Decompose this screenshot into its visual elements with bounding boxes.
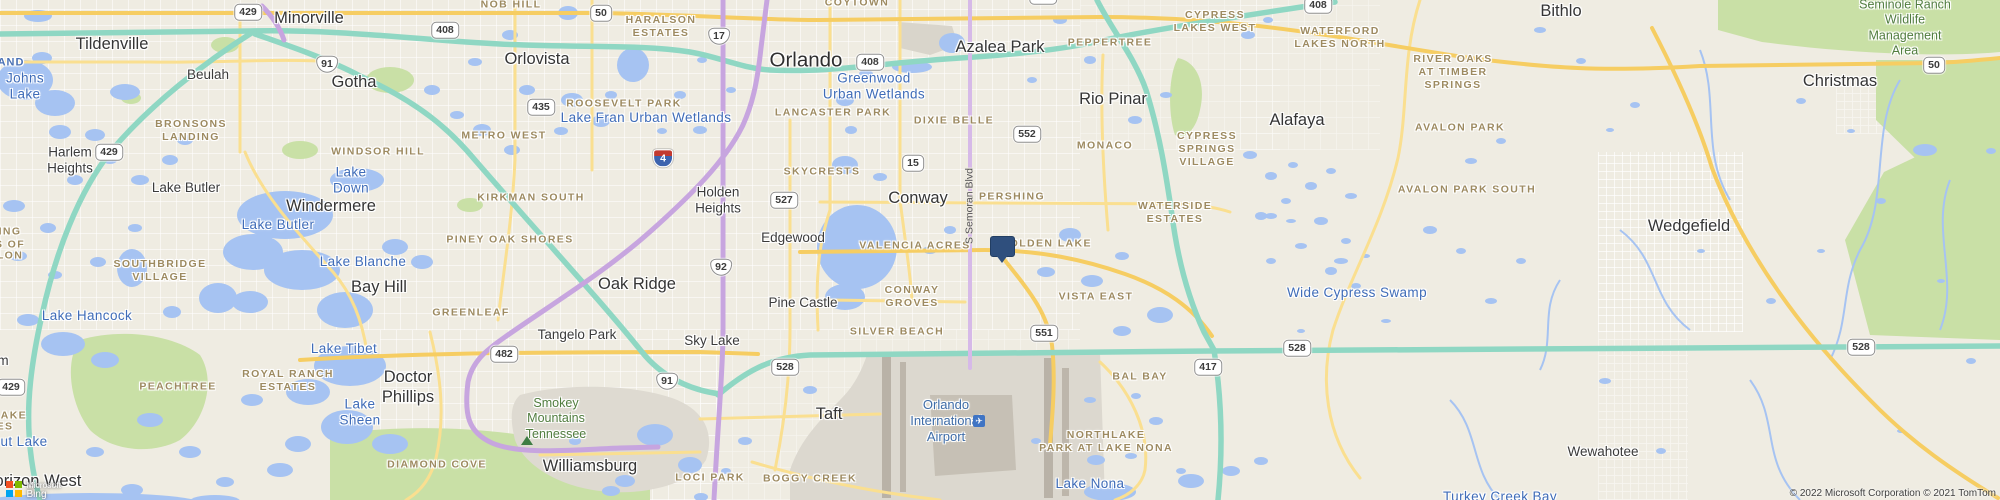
route-shield-528: 528 <box>1283 340 1311 357</box>
label-hood-lancaster-park: LANCASTER PARK <box>775 107 891 120</box>
label-city-doctor-phillips: Doctor Phillips <box>382 367 434 407</box>
label-water-lake-nona: Lake Nona <box>1056 476 1125 492</box>
label-water-fragment: ut Lake <box>0 434 47 450</box>
copyright-attribution: © 2022 Microsoft Corporation © 2021 TomT… <box>1790 488 1996 499</box>
label-water-turkey-creek-bay: Turkey Creek Bay <box>1443 489 1557 500</box>
label-city-taft: Taft <box>816 404 843 424</box>
label-city-pine-castle: Pine Castle <box>768 295 837 311</box>
label-hood-piney-oak-shores: PINEY OAK SHORES <box>446 234 573 247</box>
label-city-lake-butler: Lake Butler <box>152 180 220 196</box>
label-hood-cypress-springs-village: CYPRESS SPRINGS VILLAGE <box>1177 130 1237 168</box>
label-hood-roosevelt-park: ROOSEVELT PARK <box>566 98 681 111</box>
label-hood-cypress-lakes-west: CYPRESS LAKES WEST <box>1174 9 1257 35</box>
label-water-lake-fran: Lake Fran Urban Wetlands <box>561 110 732 126</box>
label-city-christmas: Christmas <box>1803 71 1877 91</box>
label-water-wide-cypress-swamp: Wide Cypress Swamp <box>1287 285 1427 301</box>
route-shield-429: 429 <box>0 379 25 396</box>
route-shield-552: 552 <box>1013 126 1041 143</box>
microsoft-squares-icon <box>6 481 22 497</box>
label-water-lake-blanche: Lake Blanche <box>320 254 407 270</box>
route-shield-408: 408 <box>431 22 459 39</box>
label-hood-royal-ranch-estates: ROYAL RANCH ESTATES <box>242 368 334 394</box>
label-hood-vista-east: VISTA EAST <box>1059 291 1134 304</box>
label-city-edgewood: Edgewood <box>761 230 825 246</box>
route-shield-417: 417 <box>1194 359 1222 376</box>
route-shield-4: 4 <box>653 149 673 167</box>
route-shield-50: 50 <box>1923 57 1945 74</box>
route-shield-91: 91 <box>656 373 678 390</box>
label-hood-skycrests: SKYCRESTS <box>784 166 861 179</box>
label-water-lake-butler: Lake Butler <box>242 217 315 233</box>
route-shield-528: 528 <box>1847 339 1875 356</box>
airplane-icon: ✈ <box>973 415 985 427</box>
label-water-lake-down: Lake Down <box>333 165 369 198</box>
label-city-azalea-park: Azalea Park <box>956 37 1045 57</box>
label-green-seminole-ranch: Seminole Ranch Wildlife Management Area <box>1858 0 1953 59</box>
label-city-tildenville: Tildenville <box>76 34 149 54</box>
route-shield-408: 408 <box>1304 0 1332 13</box>
route-shield-527: 527 <box>770 192 798 209</box>
map-canvas[interactable]: OrlandoTildenvilleMinorvilleBeulahGothaO… <box>0 0 2000 500</box>
label-city-orlando: Orlando <box>770 48 843 73</box>
label-city-windermere: Windermere <box>286 196 376 216</box>
label-hood-peppertree: PEPPERTREE <box>1068 37 1153 50</box>
label-hood-bal-bay: BAL BAY <box>1112 371 1167 384</box>
label-water-greenwood: Greenwood Urban Wetlands <box>823 71 925 104</box>
label-city-harlem-heights: Harlem Heights <box>47 145 93 178</box>
label-hood-metro-west: METRO WEST <box>461 130 546 143</box>
label-city-tangelo-park: Tangelo Park <box>538 327 617 343</box>
label-hood-coytown: COYTOWN <box>825 0 889 9</box>
label-water-fragment: AND <box>0 56 24 69</box>
label-green-smokey-mountains: Smokey Mountains Tennessee <box>526 396 586 442</box>
label-city-orlovista: Orlovista <box>504 49 569 69</box>
label-hood-river-oaks: RIVER OAKS AT TIMBER SPRINGS <box>1413 53 1492 91</box>
label-airport-orlando-international: Orlando International Airport <box>910 397 982 445</box>
route-shield-429: 429 <box>234 4 262 21</box>
route-shield-408: 408 <box>856 54 884 71</box>
bing-logo[interactable]: Microsoft Bing <box>6 481 61 500</box>
label-hood-haralson-estates: HARALSON ESTATES <box>626 14 697 40</box>
route-shield-91: 91 <box>316 56 338 73</box>
label-fragment: m <box>0 353 9 369</box>
label-city-holden-heights: Holden Heights <box>695 185 741 218</box>
label-city-bithlo: Bithlo <box>1540 1 1581 21</box>
route-shield-92: 92 <box>710 259 732 276</box>
label-hood-avalon-park: AVALON PARK <box>1415 122 1505 135</box>
label-city-bay-hill: Bay Hill <box>351 277 407 297</box>
label-hood-silver-beach: SILVER BEACH <box>850 326 944 339</box>
label-hood-greenleaf: GREENLEAF <box>432 307 509 320</box>
label-city-conway: Conway <box>888 188 948 208</box>
label-hood-peachtree: PEACHTREE <box>139 381 216 394</box>
label-hood-conway-groves: CONWAY GROVES <box>885 284 940 310</box>
route-shield-528: 528 <box>771 359 799 376</box>
label-fragment: ING <box>0 226 21 239</box>
label-hood-boggy-creek: BOGGY CREEK <box>763 473 857 486</box>
bing-logo-text: Microsoft Bing <box>27 481 61 500</box>
label-water-lake-hancock: Lake Hancock <box>42 308 132 324</box>
label-fragment: ES <box>0 421 13 434</box>
label-fragment: LAKE <box>0 410 27 423</box>
label-city-oak-ridge: Oak Ridge <box>598 274 676 294</box>
label-city-minorville: Minorville <box>274 8 344 28</box>
label-fragment: S OF <box>0 239 25 252</box>
label-hood-valencia-acres: VALENCIA ACRES <box>859 240 970 253</box>
route-shield-50: 50 <box>590 5 612 22</box>
label-hood-diamond-cove: DIAMOND COVE <box>387 459 487 472</box>
park-triangle-icon <box>521 436 533 445</box>
label-water-lake-tibet: Lake Tibet <box>311 341 377 357</box>
label-hood-kirkman-south: KIRKMAN SOUTH <box>477 192 584 205</box>
label-city-wedgefield: Wedgefield <box>1648 216 1730 236</box>
label-hood-pershing: PERSHING <box>979 191 1045 204</box>
label-hood-windsor-hill: WINDSOR HILL <box>331 146 425 159</box>
route-shield-429: 429 <box>95 144 123 161</box>
route-shield-551: 551 <box>1030 325 1058 342</box>
label-city-alafaya: Alafaya <box>1269 110 1324 130</box>
label-city-wewahotee: Wewahotee <box>1567 444 1638 460</box>
label-hood-waterside-estates: WATERSIDE ESTATES <box>1138 200 1212 226</box>
label-water-johns-lake: Johns Lake <box>6 71 44 104</box>
label-city-beulah: Beulah <box>187 67 229 83</box>
route-shield-482: 482 <box>490 346 518 363</box>
label-hood-nob-hill: NOB HILL <box>481 0 542 11</box>
label-hood-waterford-lakes-north: WATERFORD LAKES NORTH <box>1294 25 1385 51</box>
label-hood-avalon-park-south: AVALON PARK SOUTH <box>1398 184 1536 197</box>
label-hood-northlake-park: NORTHLAKE PARK AT LAKE NONA <box>1039 429 1173 455</box>
route-shield-15: 15 <box>902 155 924 172</box>
label-hood-dixie-belle: DIXIE BELLE <box>914 115 994 128</box>
label-hood-southbridge-village: SOUTHBRIDGE VILLAGE <box>114 258 207 284</box>
route-shield-17: 17 <box>708 28 730 45</box>
label-hood-bronsons-landing: BRONSONS LANDING <box>155 118 227 144</box>
label-water-lake-sheen: Lake Sheen <box>339 397 380 430</box>
route-shield-551: 551 <box>1029 0 1057 4</box>
label-city-gotha: Gotha <box>332 72 377 92</box>
route-shield-435: 435 <box>527 99 555 116</box>
label-hood-loci-park: LOCI PARK <box>675 472 745 485</box>
map-pushpin-marker[interactable] <box>990 236 1015 257</box>
label-city-rio-pinar: Rio Pinar <box>1079 89 1147 109</box>
label-hood-monaco: MONACO <box>1077 140 1133 153</box>
label-city-williamsburg: Williamsburg <box>543 456 637 476</box>
label-road-s-semoran-blvd: S Semoran Blvd <box>964 168 977 244</box>
label-fragment: LON <box>0 250 23 263</box>
label-city-sky-lake: Sky Lake <box>684 333 740 349</box>
